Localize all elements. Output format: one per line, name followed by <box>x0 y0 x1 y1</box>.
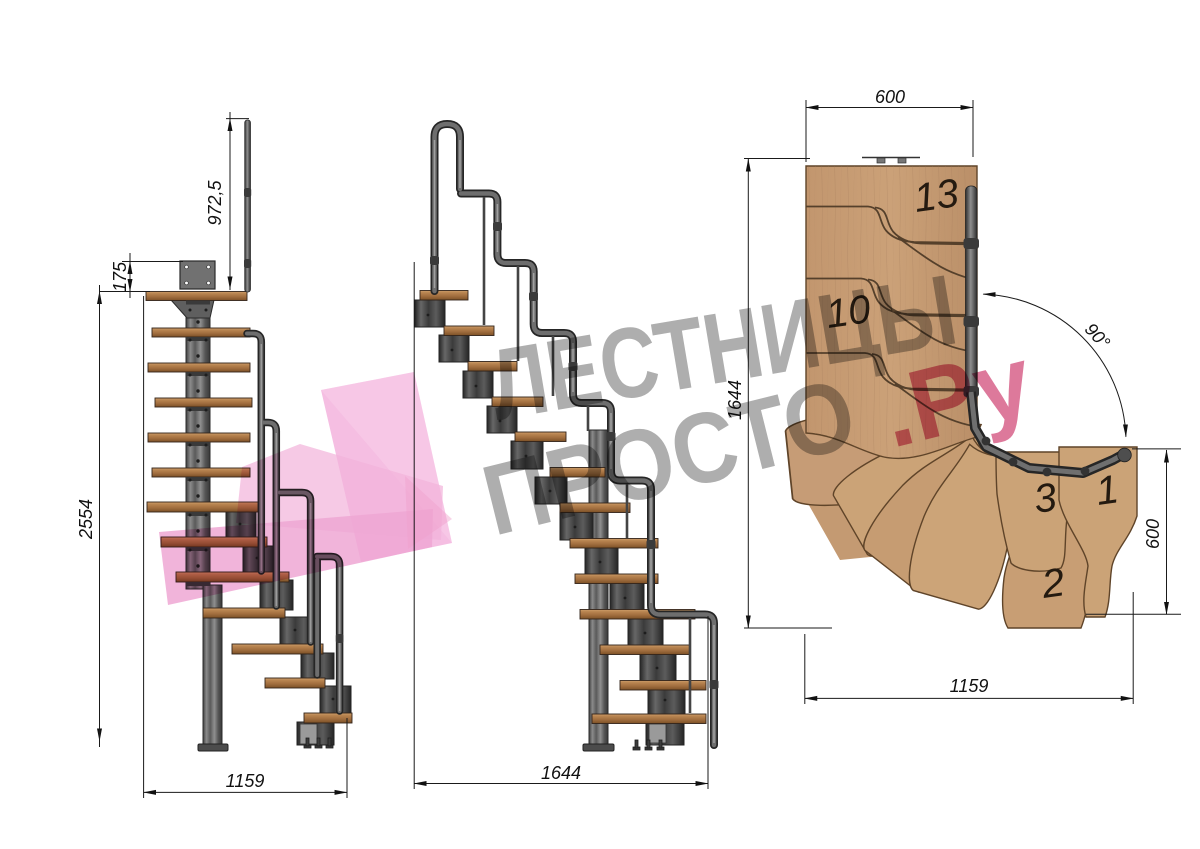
svg-text:1644: 1644 <box>541 763 581 783</box>
svg-text:2554: 2554 <box>76 499 96 540</box>
svg-text:600: 600 <box>875 87 905 107</box>
svg-text:972,5: 972,5 <box>205 179 225 225</box>
svg-text:175: 175 <box>110 261 130 292</box>
svg-text:600: 600 <box>1143 519 1163 549</box>
svg-text:13: 13 <box>911 171 961 221</box>
svg-text:1159: 1159 <box>950 676 989 696</box>
svg-text:1159: 1159 <box>226 771 265 791</box>
